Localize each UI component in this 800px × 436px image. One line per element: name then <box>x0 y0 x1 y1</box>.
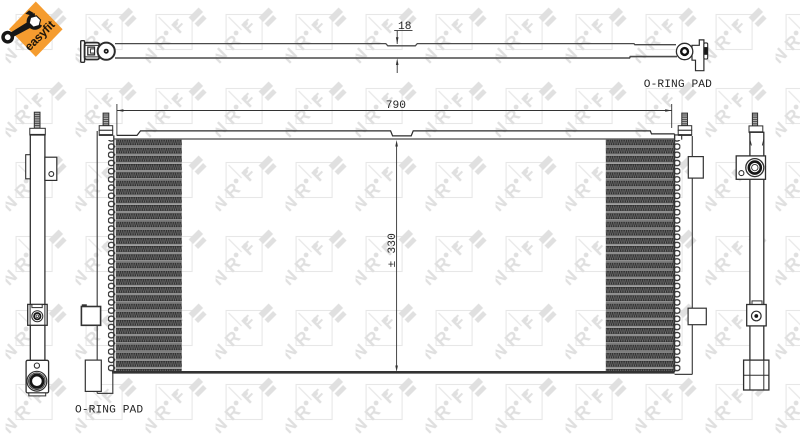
svg-text:18: 18 <box>398 21 411 33</box>
svg-text:O-RING PAD: O-RING PAD <box>75 404 143 416</box>
svg-text:O-RING PAD: O-RING PAD <box>644 79 712 91</box>
svg-text:790: 790 <box>386 100 406 112</box>
svg-text:± 330: ± 330 <box>387 233 399 268</box>
